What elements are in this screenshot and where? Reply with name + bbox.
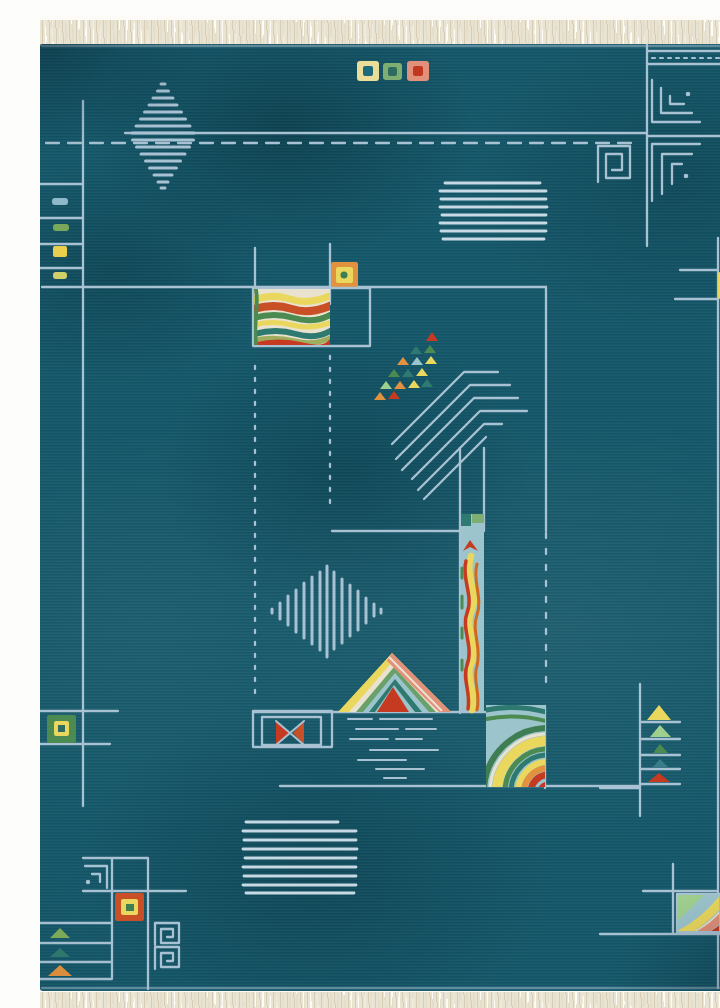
- water-lines: [348, 719, 438, 778]
- stripe-block-upper: [440, 183, 547, 239]
- hatched-diamond-top: [132, 84, 194, 188]
- stripe-block-lower: [243, 822, 357, 893]
- pinwheel-square-right-edge: [675, 270, 720, 299]
- left-border-rungs: [40, 101, 83, 806]
- confetti-triangle-tree: [374, 332, 527, 499]
- corner-group-bottom-left: [40, 858, 186, 989]
- green-square-left: [40, 711, 118, 744]
- corner-group-bottom-right: [600, 864, 720, 988]
- rug-motifs: [40, 16, 720, 1008]
- orange-accent-square: [331, 262, 358, 288]
- accent-squares-top: [357, 61, 429, 81]
- striped-pyramid: [338, 653, 451, 712]
- confetti-triangles: [374, 332, 438, 400]
- triangle-ladder: [600, 684, 680, 816]
- bowtie-box: [253, 711, 332, 747]
- hatched-diamond-center: [272, 566, 381, 657]
- rug-photo: [40, 16, 720, 1008]
- selvage-edges: [42, 46, 720, 988]
- serpentine-totem-column: [460, 448, 484, 713]
- rainbow-wave-panel: [253, 288, 370, 348]
- greek-key-corner-top-right: [598, 45, 720, 246]
- center-frame-lines: [42, 244, 640, 788]
- wave-blob: [484, 705, 612, 856]
